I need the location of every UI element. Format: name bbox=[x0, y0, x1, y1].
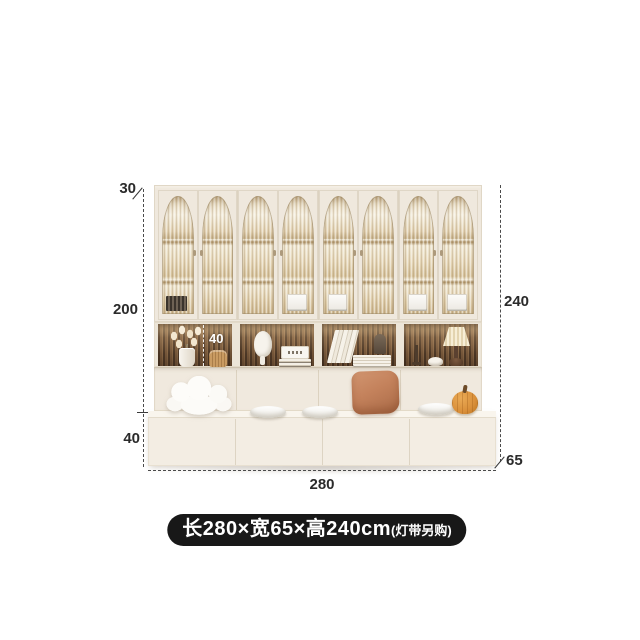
flower-vase bbox=[179, 348, 195, 367]
pumpkin-decor bbox=[452, 391, 478, 414]
dimension-label-upper-height: 200 bbox=[94, 301, 138, 318]
glass-door bbox=[399, 190, 439, 320]
dimension-label-shelf-height: 40 bbox=[209, 331, 223, 346]
dimension-label-total-height: 240 bbox=[504, 293, 529, 310]
size-badge: 长280×宽65×高240cm(灯带另购) bbox=[167, 514, 466, 546]
dimension-label-base-height: 40 bbox=[102, 430, 140, 447]
fluted-glass-panel bbox=[403, 196, 435, 314]
upper-glass-cabinet bbox=[154, 185, 482, 322]
dimension-tick-mid-left bbox=[137, 412, 148, 413]
dimension-label-width: 280 bbox=[294, 476, 350, 493]
serving-dish bbox=[302, 406, 338, 418]
bench-cabinet bbox=[148, 411, 496, 466]
dimension-line-inner-shelf bbox=[203, 325, 204, 366]
book-stack bbox=[279, 359, 311, 367]
cabinet-bay bbox=[398, 190, 478, 320]
white-radio bbox=[281, 346, 309, 359]
dimension-line-bottom bbox=[148, 470, 496, 471]
arch-sculpture bbox=[254, 331, 272, 357]
storage-basket bbox=[209, 350, 227, 367]
fluted-glass-panel bbox=[362, 196, 394, 314]
bust-sculpture bbox=[374, 334, 386, 354]
dimension-line-right bbox=[500, 185, 501, 462]
fluted-glass-panel bbox=[162, 196, 194, 314]
magazine-stack bbox=[353, 355, 391, 366]
table-lamp-base bbox=[449, 358, 463, 366]
glass-door bbox=[358, 190, 398, 320]
cloud-pillow bbox=[163, 376, 235, 416]
cabinet-bay bbox=[158, 190, 237, 320]
glass-door bbox=[278, 190, 318, 320]
glass-door bbox=[319, 190, 359, 320]
white-bowl bbox=[428, 357, 443, 366]
serving-dish bbox=[418, 403, 454, 415]
fluted-glass-panel bbox=[282, 196, 314, 314]
product-image: 30 200 40 40 280 240 65 长280×宽65×高240cm(… bbox=[0, 0, 640, 640]
dimension-line-left bbox=[143, 189, 144, 467]
glass-door bbox=[238, 190, 278, 320]
fluted-glass-panel bbox=[323, 196, 355, 314]
cabinet-bay bbox=[318, 190, 398, 320]
fluted-glass-panel bbox=[242, 196, 274, 314]
glass-door bbox=[438, 190, 478, 320]
fluted-glass-panel bbox=[442, 196, 474, 314]
glass-door bbox=[158, 190, 198, 320]
dimension-label-top-panel: 30 bbox=[102, 180, 136, 197]
glass-door bbox=[198, 190, 238, 320]
serving-dish bbox=[250, 406, 286, 418]
door-bays bbox=[158, 190, 478, 320]
candlestick bbox=[415, 345, 418, 365]
size-badge-main: 长280×宽65×高240cm bbox=[182, 518, 391, 540]
size-badge-note: (灯带另购) bbox=[391, 523, 452, 538]
cabinet-bay bbox=[237, 190, 317, 320]
terracotta-pillow bbox=[351, 370, 399, 415]
dimension-label-depth: 65 bbox=[506, 452, 523, 469]
fluted-glass-panel bbox=[202, 196, 234, 314]
